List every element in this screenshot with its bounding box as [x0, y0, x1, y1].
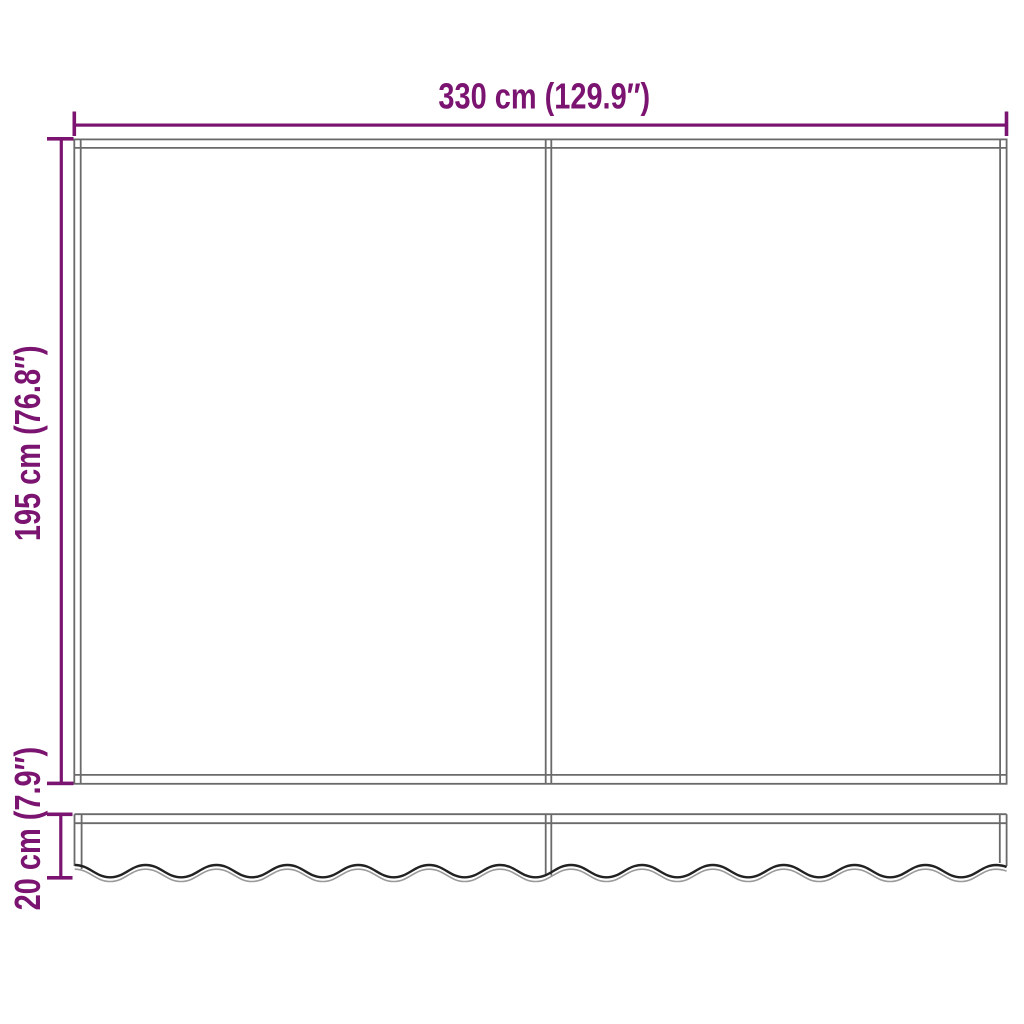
- svg-text:330 cm (129.9″): 330 cm (129.9″): [438, 75, 650, 116]
- svg-text:195 cm (76.8″): 195 cm (76.8″): [7, 345, 48, 541]
- svg-text:20 cm (7.9″): 20 cm (7.9″): [7, 747, 48, 911]
